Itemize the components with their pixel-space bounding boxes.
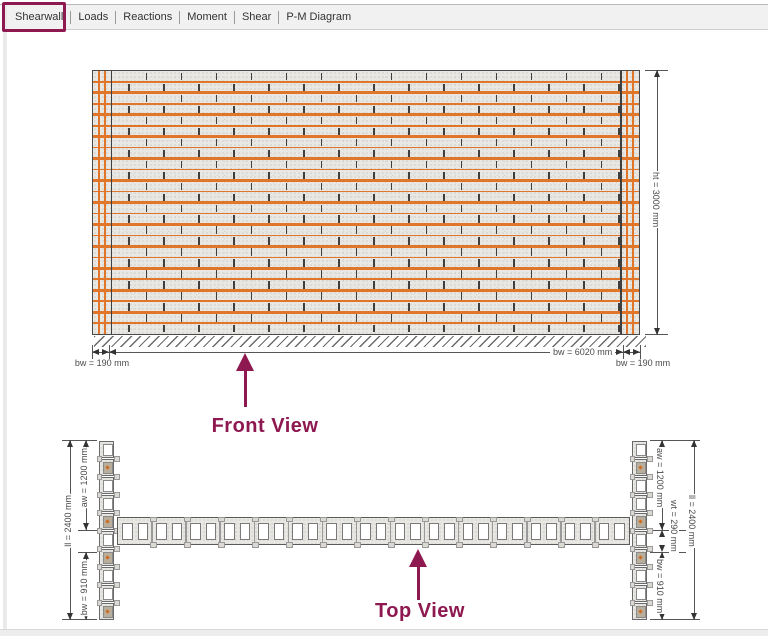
horizontal-rebar-band (93, 223, 639, 226)
block-head-joint (321, 139, 323, 146)
block-head-joint (443, 172, 445, 179)
tab-moment[interactable]: Moment (180, 9, 234, 25)
block-head-joint (601, 139, 603, 146)
block-head-joint (461, 117, 463, 124)
block-head-joint (531, 73, 533, 80)
mortar-notch (97, 564, 103, 570)
mortar-notch (252, 517, 259, 523)
mortar-notch (524, 542, 531, 548)
block-head-joint (461, 270, 463, 277)
block-head-joint (146, 95, 148, 102)
block-head-joint (583, 194, 585, 201)
mortar-notch (97, 456, 103, 462)
block-head-joint (181, 117, 183, 124)
block-head-joint (216, 314, 218, 321)
block-head-joint (303, 150, 305, 157)
mortar-notch (630, 564, 636, 570)
hollow-cell (274, 523, 285, 540)
hollow-cell (512, 523, 523, 540)
tab-loads[interactable]: Loads (71, 9, 115, 25)
block-head-joint (408, 281, 410, 288)
mortar-notch (114, 510, 120, 516)
block-head-joint (163, 281, 165, 288)
horizontal-rebar-band (93, 257, 639, 259)
block-head-joint (496, 292, 498, 299)
block-head-joint (356, 183, 358, 190)
block-head-joint (513, 281, 515, 288)
block-head-joint (146, 270, 148, 277)
block-head-joint (373, 106, 375, 113)
mortar-notch (647, 600, 653, 606)
hollow-cell (103, 588, 113, 600)
front-view-arrow-head (236, 353, 254, 371)
block-head-joint (233, 303, 235, 310)
block-head-joint (251, 226, 253, 233)
mortar-notch (630, 600, 636, 606)
mortar-notch (422, 542, 429, 548)
block-head-joint (391, 205, 393, 212)
block-head-joint (321, 270, 323, 277)
block-head-joint (181, 314, 183, 321)
grouted-cell (636, 606, 646, 618)
block-head-joint (233, 215, 235, 222)
dim-arrowhead (102, 349, 109, 355)
block-head-joint (286, 161, 288, 168)
mortar-notch (218, 517, 225, 523)
grouted-cell (636, 552, 646, 564)
block-head-joint (286, 205, 288, 212)
block-head-joint (531, 292, 533, 299)
hollow-cell (463, 523, 474, 540)
block-head-joint (566, 314, 568, 321)
dim-arrowhead (67, 613, 73, 620)
top-view-web-wall (117, 517, 630, 545)
block-head-joint (513, 150, 515, 157)
horizontal-rebar-band (93, 245, 639, 248)
block-head-joint (338, 237, 340, 244)
dim-arrowhead (83, 440, 89, 447)
block-head-joint (443, 303, 445, 310)
mortar-notch (647, 510, 653, 516)
block-head-joint (461, 183, 463, 190)
block-head-joint (391, 161, 393, 168)
block-head-joint (268, 237, 270, 244)
block-head-joint (531, 226, 533, 233)
block-head-joint (303, 194, 305, 201)
top-view-label: Top View (330, 600, 510, 623)
block-head-joint (198, 303, 200, 310)
block-head-joint (216, 248, 218, 255)
block-head-joint (321, 314, 323, 321)
tab-shear[interactable]: Shear (235, 9, 278, 25)
hollow-cell (190, 523, 201, 540)
block-head-joint (601, 161, 603, 168)
hollow-cell (122, 523, 133, 540)
mortar-notch (456, 542, 463, 548)
block-head-joint (303, 215, 305, 222)
block-head-joint (513, 237, 515, 244)
block-head-joint (531, 183, 533, 190)
mortar-notch (647, 492, 653, 498)
dim-arrowhead (659, 440, 665, 447)
flange-boundary-joint (111, 71, 113, 334)
horizontal-rebar-band (93, 169, 639, 171)
mortar-notch (456, 517, 463, 523)
block-head-joint (338, 172, 340, 179)
block-head-joint (286, 314, 288, 321)
block-head-joint (496, 226, 498, 233)
block-head-joint (461, 73, 463, 80)
block-head-joint (163, 237, 165, 244)
block-head-joint (181, 248, 183, 255)
block-head-joint (443, 281, 445, 288)
block-head-joint (268, 325, 270, 332)
block-head-joint (478, 172, 480, 179)
block-head-joint (601, 183, 603, 190)
rebar-dot (638, 519, 642, 523)
grouted-cell (103, 552, 113, 564)
block-head-joint (268, 128, 270, 135)
hollow-cell (103, 444, 113, 456)
block-head-joint (303, 237, 305, 244)
mortar-notch (97, 492, 103, 498)
block-head-joint (268, 303, 270, 310)
block-head-joint (408, 84, 410, 91)
block-head-joint (216, 161, 218, 168)
mortar-notch (630, 528, 636, 534)
block-head-joint (601, 226, 603, 233)
hollow-cell (342, 523, 353, 540)
dim-arrowhead (691, 440, 697, 447)
block-head-joint (181, 205, 183, 212)
dim-arrowhead (659, 530, 665, 537)
horizontal-rebar-band (93, 267, 639, 270)
block-head-joint (303, 325, 305, 332)
block-head-joint (146, 248, 148, 255)
hollow-cell (224, 523, 235, 540)
block-head-joint (426, 226, 428, 233)
block-head-joint (496, 73, 498, 80)
horizontal-rebar-band (93, 278, 639, 280)
block-head-joint (391, 117, 393, 124)
block-head-joint (548, 325, 550, 332)
block-head-joint (181, 183, 183, 190)
block-head-joint (443, 194, 445, 201)
block-head-joint (408, 215, 410, 222)
dim-label-flange-right: bw = 190 mm (597, 358, 689, 368)
block-head-joint (478, 194, 480, 201)
block-head-joint (356, 95, 358, 102)
block-head-joint (583, 84, 585, 91)
block-head-joint (443, 84, 445, 91)
block-head-joint (583, 128, 585, 135)
block-head-joint (391, 270, 393, 277)
block-head-joint (531, 95, 533, 102)
block-head-joint (583, 150, 585, 157)
block-head-joint (338, 215, 340, 222)
block-head-joint (181, 161, 183, 168)
block-head-joint (303, 172, 305, 179)
block-head-joint (566, 248, 568, 255)
block-head-joint (408, 150, 410, 157)
block-head-joint (128, 150, 130, 157)
block-head-joint (443, 106, 445, 113)
rebar-dot (638, 465, 642, 469)
horizontal-rebar-band (93, 300, 639, 302)
block-head-joint (513, 106, 515, 113)
rebar-dot (105, 609, 109, 613)
dim-arrowhead (109, 349, 116, 355)
block-head-joint (163, 325, 165, 332)
mortar-notch (647, 456, 653, 462)
hollow-cell (292, 523, 303, 540)
block-head-joint (408, 106, 410, 113)
block-head-joint (426, 117, 428, 124)
block-head-joint (478, 303, 480, 310)
mortar-notch (286, 517, 293, 523)
tab-reactions[interactable]: Reactions (116, 9, 179, 25)
block-head-joint (146, 183, 148, 190)
block-head-joint (268, 84, 270, 91)
block-head-joint (391, 314, 393, 321)
horizontal-rebar-band (93, 81, 639, 83)
horizontal-rebar-band (93, 311, 639, 314)
block-head-joint (216, 73, 218, 80)
hollow-cell (156, 523, 167, 540)
mortar-notch (354, 517, 361, 523)
dim-label-right-bw: bw = 910 mm (655, 558, 665, 614)
mortar-notch (114, 582, 120, 588)
dim-label-right-overall: ll = 2400 mm (687, 494, 697, 548)
block-head-joint (583, 259, 585, 266)
horizontal-rebar-band (93, 91, 639, 94)
horizontal-rebar-band (93, 135, 639, 138)
rebar-dot (105, 465, 109, 469)
block-head-joint (216, 117, 218, 124)
mortar-notch (630, 582, 636, 588)
mortar-notch (558, 542, 565, 548)
block-head-joint (478, 325, 480, 332)
block-head-joint (548, 172, 550, 179)
block-head-joint (216, 139, 218, 146)
block-head-joint (128, 259, 130, 266)
block-head-joint (356, 161, 358, 168)
block-head-joint (198, 150, 200, 157)
block-head-joint (443, 237, 445, 244)
hollow-cell (636, 498, 646, 510)
block-head-joint (198, 237, 200, 244)
dim-arrowhead (659, 523, 665, 530)
grouted-cell (636, 516, 646, 528)
dim-label-left-aw: aw = 1200 mm (79, 447, 89, 508)
horizontal-rebar-band (93, 322, 639, 324)
block-head-joint (286, 73, 288, 80)
block-head-joint (216, 270, 218, 277)
hollow-cell (614, 523, 625, 540)
rebar-dot (105, 519, 109, 523)
block-head-joint (181, 270, 183, 277)
front-view-wall-elevation (92, 70, 640, 335)
block-head-joint (461, 248, 463, 255)
block-head-joint (548, 128, 550, 135)
app-window: Shearwall Loads Reactions Moment Shear P… (0, 0, 768, 636)
horizontal-rebar-band (93, 147, 639, 149)
tab-pm-diagram[interactable]: P-M Diagram (279, 9, 358, 25)
mortar-notch (524, 517, 531, 523)
block-head-joint (531, 139, 533, 146)
block-head-joint (128, 215, 130, 222)
dim-arrowhead (623, 349, 630, 355)
block-head-joint (128, 325, 130, 332)
block-head-joint (146, 205, 148, 212)
block-head-joint (408, 172, 410, 179)
block-head-joint (426, 73, 428, 80)
tab-shearwall[interactable]: Shearwall (8, 9, 70, 25)
block-head-joint (146, 117, 148, 124)
dim-label-left-bw: bw = 910 mm (79, 560, 89, 616)
block-head-joint (391, 183, 393, 190)
block-head-joint (321, 95, 323, 102)
hollow-cell (258, 523, 269, 540)
horizontal-rebar-band (93, 235, 639, 237)
block-head-joint (496, 183, 498, 190)
block-head-joint (601, 314, 603, 321)
block-head-joint (583, 106, 585, 113)
block-head-joint (601, 205, 603, 212)
block-head-joint (163, 128, 165, 135)
block-head-joint (373, 303, 375, 310)
block-head-joint (128, 281, 130, 288)
block-head-joint (478, 106, 480, 113)
block-head-joint (601, 292, 603, 299)
block-head-joint (268, 106, 270, 113)
block-head-joint (286, 292, 288, 299)
block-head-joint (548, 237, 550, 244)
block-head-joint (198, 325, 200, 332)
block-head-joint (548, 215, 550, 222)
vertical-rebar-bar (626, 71, 628, 334)
block-head-joint (426, 314, 428, 321)
block-head-joint (408, 259, 410, 266)
block-head-joint (373, 281, 375, 288)
block-head-joint (426, 183, 428, 190)
block-head-joint (548, 303, 550, 310)
block-head-joint (251, 73, 253, 80)
block-head-joint (286, 248, 288, 255)
block-head-joint (566, 117, 568, 124)
block-head-joint (356, 205, 358, 212)
block-head-joint (513, 325, 515, 332)
block-head-joint (601, 117, 603, 124)
block-head-joint (303, 259, 305, 266)
block-head-joint (601, 73, 603, 80)
block-head-joint (251, 314, 253, 321)
mortar-notch (114, 456, 120, 462)
block-head-joint (583, 281, 585, 288)
block-head-joint (233, 106, 235, 113)
block-head-joint (338, 194, 340, 201)
block-head-joint (163, 150, 165, 157)
block-head-joint (321, 183, 323, 190)
grouted-cell (636, 462, 646, 474)
mortar-notch (97, 510, 103, 516)
block-head-joint (128, 303, 130, 310)
dim-arrowhead (659, 545, 665, 552)
block-head-joint (233, 281, 235, 288)
hollow-cell (444, 523, 455, 540)
block-head-joint (513, 128, 515, 135)
block-head-joint (373, 325, 375, 332)
block-head-joint (128, 84, 130, 91)
block-head-joint (286, 270, 288, 277)
mortar-notch (114, 564, 120, 570)
block-head-joint (548, 194, 550, 201)
block-head-joint (128, 128, 130, 135)
block-head-joint (461, 226, 463, 233)
block-head-joint (408, 325, 410, 332)
block-head-joint (478, 281, 480, 288)
block-head-joint (181, 292, 183, 299)
block-head-joint (303, 84, 305, 91)
mortar-notch (647, 474, 653, 480)
flange-boundary-joint (620, 71, 622, 334)
hollow-cell (326, 523, 337, 540)
block-head-joint (461, 161, 463, 168)
block-head-joint (128, 194, 130, 201)
mortar-notch (97, 546, 103, 552)
block-head-joint (601, 248, 603, 255)
block-head-joint (531, 314, 533, 321)
block-head-joint (181, 139, 183, 146)
block-head-joint (356, 139, 358, 146)
block-head-joint (426, 205, 428, 212)
mortar-notch (114, 546, 120, 552)
block-head-joint (163, 172, 165, 179)
block-head-joint (303, 128, 305, 135)
block-head-joint (303, 303, 305, 310)
block-head-joint (321, 292, 323, 299)
block-head-joint (601, 95, 603, 102)
block-head-joint (356, 314, 358, 321)
block-head-joint (181, 95, 183, 102)
block-head-joint (496, 314, 498, 321)
hollow-cell (103, 480, 113, 492)
block-head-joint (321, 117, 323, 124)
block-head-joint (391, 73, 393, 80)
hollow-cell (103, 570, 113, 582)
block-head-joint (373, 259, 375, 266)
block-head-joint (356, 248, 358, 255)
mortar-notch (490, 517, 497, 523)
block-head-joint (373, 194, 375, 201)
top-view-arrow-head (409, 549, 427, 567)
block-head-joint (548, 281, 550, 288)
block-head-joint (251, 248, 253, 255)
block-head-joint (198, 128, 200, 135)
dim-label-flange-left: bw = 190 mm (56, 358, 148, 368)
mortar-notch (218, 542, 225, 548)
block-head-joint (566, 183, 568, 190)
block-head-joint (216, 205, 218, 212)
mortar-notch (630, 474, 636, 480)
window-bottom-bar[interactable] (0, 629, 768, 636)
block-head-joint (583, 237, 585, 244)
block-head-joint (356, 117, 358, 124)
dim-arrowhead (654, 70, 660, 77)
dim-label-right-wt: wt = 290 mm (669, 499, 679, 553)
dim-arrowhead (67, 440, 73, 447)
hollow-cell (138, 523, 149, 540)
